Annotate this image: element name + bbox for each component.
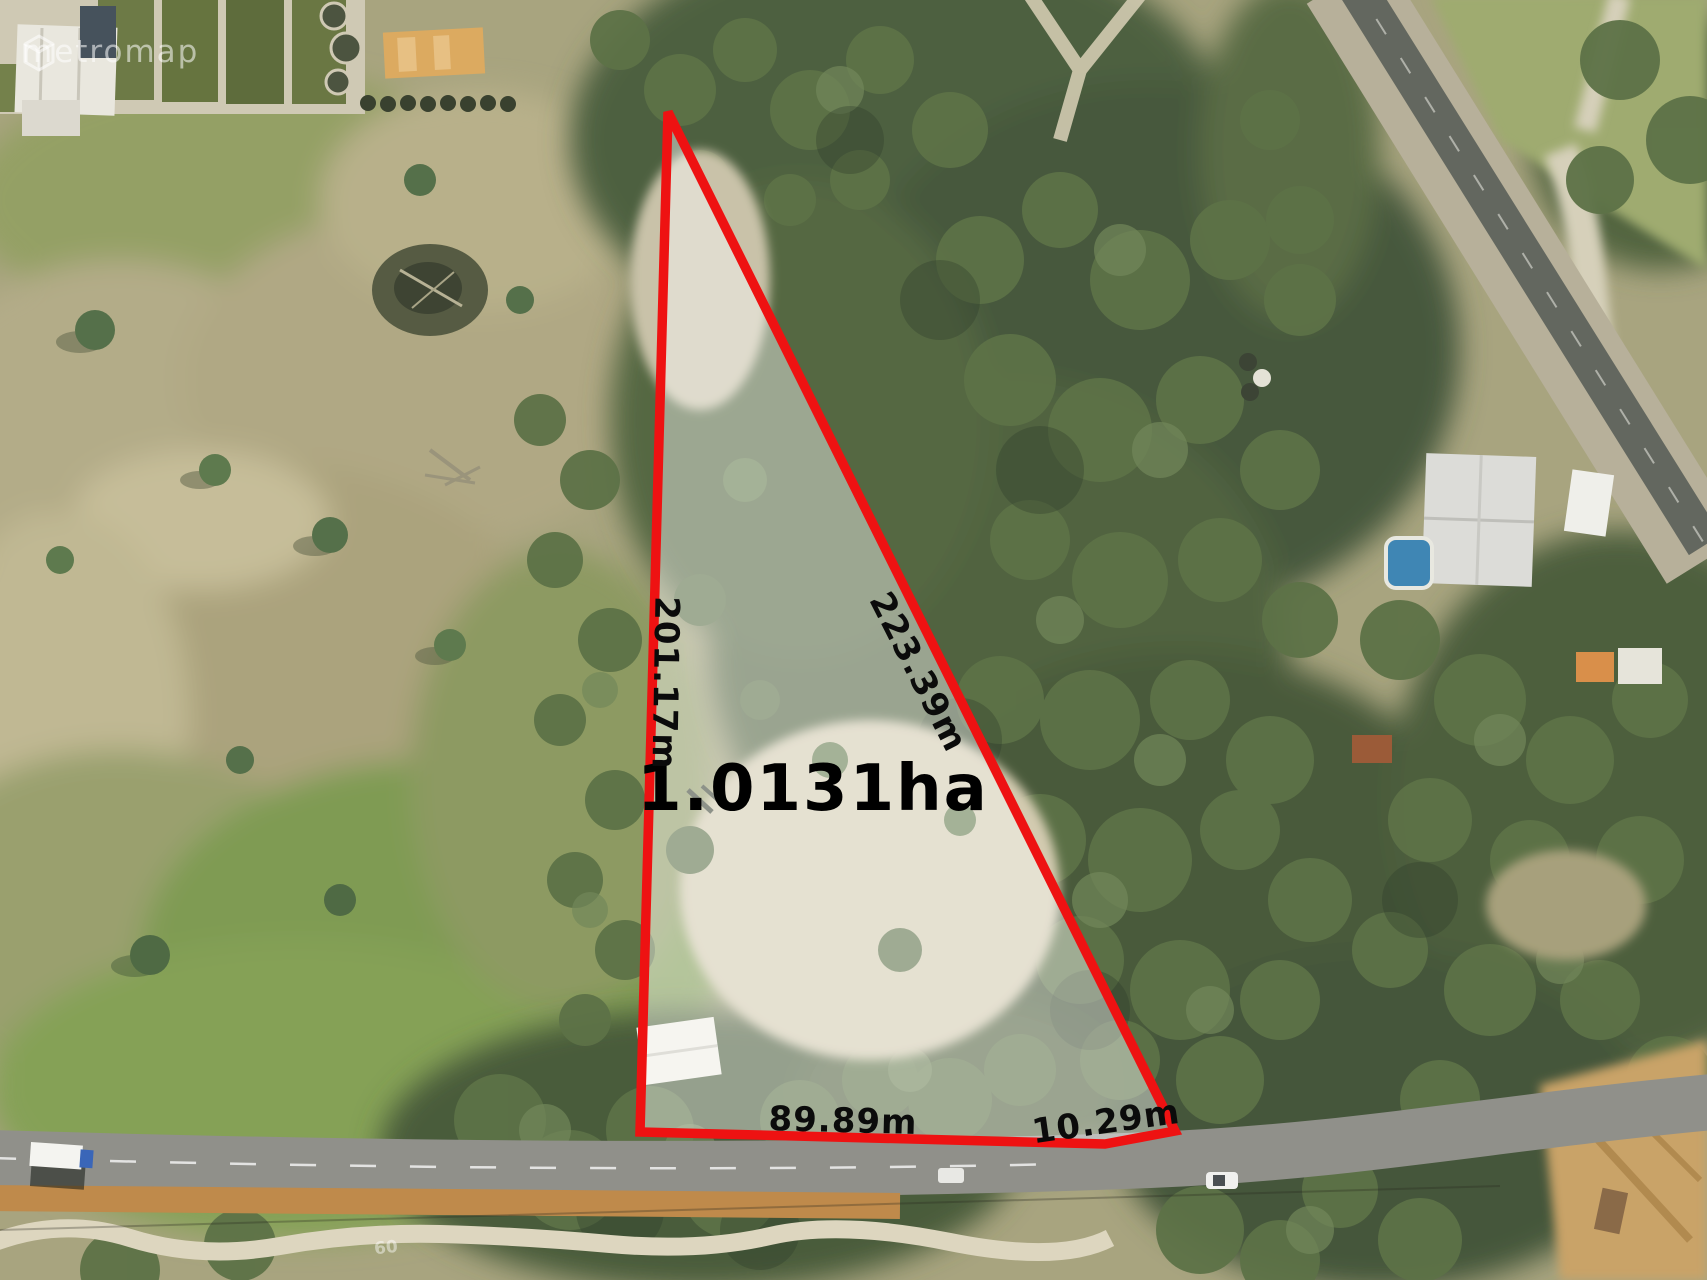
parcel-area-label: 1.0131ha (637, 752, 989, 826)
metromap-watermark: metromap (22, 34, 199, 70)
road-speed-marking: 60 (373, 1237, 399, 1259)
boundary-length-south: 89.89m (768, 1099, 918, 1143)
metromap-logo-icon (22, 34, 56, 72)
aerial-map-view: 1.0131ha 201.17m 223.39m 89.89m 10.29m 6… (0, 0, 1707, 1280)
boundary-length-west: 201.17m (643, 596, 686, 770)
parcel-boundary-overlay (0, 0, 1707, 1280)
